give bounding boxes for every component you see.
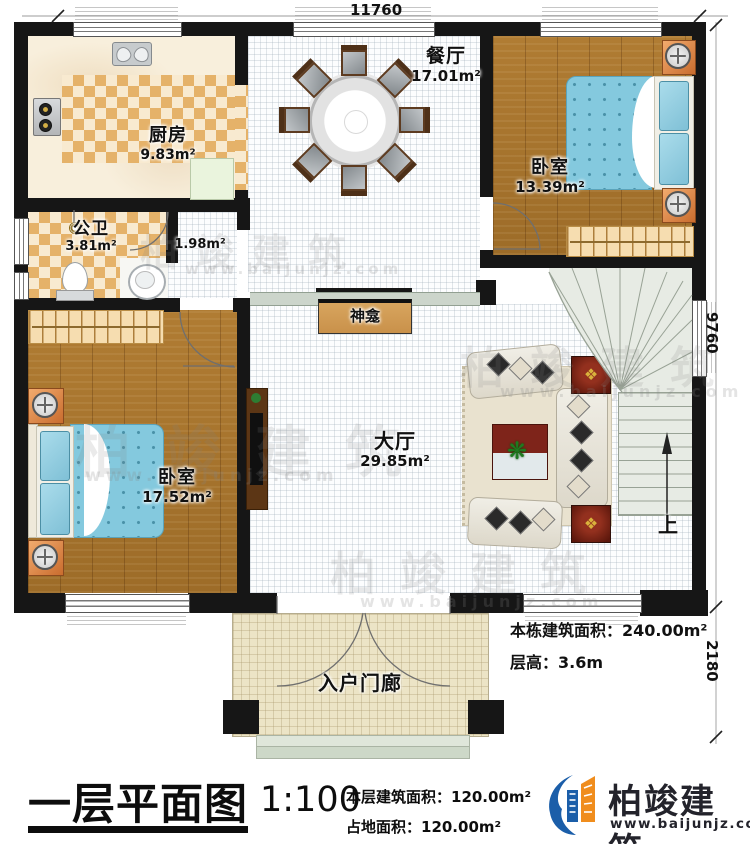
coffee-table-plant: ❋ bbox=[507, 437, 527, 465]
bedroom1-lamp-bottom bbox=[665, 191, 691, 217]
sill-top-bedroom1 bbox=[542, 7, 658, 20]
note-floor-height: 层高：3.6m bbox=[510, 654, 710, 672]
window-left-bath-1 bbox=[14, 218, 29, 265]
bedroom2-wardrobe bbox=[28, 310, 164, 344]
bedroom1-name: 卧室 bbox=[504, 158, 596, 179]
bedroom2-pillow-2 bbox=[40, 483, 70, 535]
dining-chair-w bbox=[284, 107, 310, 133]
bedroom1-pillow-1 bbox=[659, 81, 689, 131]
coffee-table: ❋ bbox=[492, 424, 548, 480]
page-title: 一层平面图 bbox=[28, 770, 248, 832]
wall-bottom-a bbox=[14, 593, 65, 613]
end-table-top: ❖ bbox=[571, 356, 611, 394]
brand-site: www.baijunjz.com bbox=[610, 816, 750, 832]
bathroom-name: 公卫 bbox=[55, 220, 127, 240]
wall-bottom-d bbox=[640, 590, 708, 616]
sill-bottom-bedroom2 bbox=[67, 613, 186, 625]
dimension-top: 11760 bbox=[350, 1, 402, 19]
hall-label: 大厅 29.85m² bbox=[348, 430, 442, 470]
sink-basin-left bbox=[114, 45, 133, 64]
dining-label: 餐厅 17.01m² bbox=[400, 46, 492, 85]
wall-bottom-c bbox=[450, 593, 523, 613]
wall-kitchen-divider-b bbox=[235, 190, 248, 212]
sill-top-kitchen bbox=[75, 7, 178, 20]
porch-label: 入户门廊 bbox=[300, 672, 420, 695]
stove-burner-2 bbox=[39, 119, 52, 132]
bedroom1-label: 卧室 13.39m² bbox=[504, 158, 596, 196]
hall-area: 29.85m² bbox=[348, 453, 442, 470]
window-bottom-hall bbox=[523, 594, 642, 613]
bathroom-sink-basin bbox=[135, 271, 155, 289]
dining-chair-e bbox=[399, 107, 425, 133]
window-left-bath-2 bbox=[14, 272, 29, 300]
title-underline bbox=[28, 826, 248, 833]
hall-name: 大厅 bbox=[348, 430, 442, 453]
dining-name: 餐厅 bbox=[400, 46, 492, 68]
dimension-right-upper: 9760 bbox=[703, 312, 721, 354]
bathroom-label: 公卫 3.81m² bbox=[55, 220, 127, 254]
window-top-kitchen bbox=[73, 22, 182, 37]
window-top-dining bbox=[293, 22, 435, 37]
end-table-bottom: ❖ bbox=[571, 505, 611, 543]
tv-screen bbox=[250, 413, 263, 485]
shrine-label: 神龛 bbox=[350, 307, 380, 325]
dining-table-center bbox=[344, 110, 368, 134]
porch-column-right bbox=[468, 700, 504, 734]
note-total-area: 本栋建筑面积：240.00m² bbox=[510, 622, 710, 640]
stairs-up-label: 上 bbox=[655, 514, 681, 537]
wall-bottom-b bbox=[188, 593, 277, 613]
kitchen-label: 厨房 9.83m² bbox=[128, 126, 208, 163]
toilet-tank bbox=[56, 290, 94, 301]
bathroom-sink bbox=[128, 264, 166, 300]
wall-left bbox=[14, 22, 28, 613]
bedroom2-name: 卧室 bbox=[131, 468, 223, 489]
shrine-cabinet: 神龛 bbox=[318, 299, 412, 334]
bedroom1-lamp-top bbox=[665, 43, 691, 69]
wall-bath-stub bbox=[166, 208, 178, 263]
dining-chair-n bbox=[341, 50, 367, 76]
kitchen-sink bbox=[112, 42, 152, 66]
bathroom-area: 3.81m² bbox=[55, 240, 127, 255]
stove-burner-1 bbox=[39, 103, 52, 116]
wall-kitchen-divider-a bbox=[235, 22, 248, 85]
title-block: 一层平面图 1:100 本层建筑面积：120.00m² 占地面积：120.00m… bbox=[0, 768, 750, 844]
bedroom2-lamp-bottom bbox=[32, 544, 58, 570]
bedroom1-wardrobe bbox=[566, 226, 694, 257]
porch-column-left bbox=[223, 700, 259, 734]
stairs-straight-flight bbox=[618, 392, 694, 516]
kitchen-cabinet bbox=[190, 158, 234, 200]
sink-basin-right bbox=[132, 45, 151, 64]
kitchen-pass-counter bbox=[235, 85, 248, 190]
corridor-floor bbox=[168, 212, 237, 298]
floor-plan: 神龛 bbox=[0, 0, 750, 844]
footprint-note: 占地面积：120.00m² bbox=[346, 816, 501, 837]
corridor-area-label: 1.98m² bbox=[168, 238, 232, 253]
bedroom2-lamp-top bbox=[32, 392, 58, 418]
bedroom1-area: 13.39m² bbox=[504, 179, 596, 196]
dining-area: 17.01m² bbox=[400, 68, 492, 85]
brand-name: 柏竣建筑 bbox=[608, 774, 750, 844]
wall-kitchen-bottom bbox=[14, 198, 248, 212]
kitchen-name: 厨房 bbox=[128, 126, 208, 147]
brand-logo-icon bbox=[543, 772, 607, 838]
bedroom1-pillow-2 bbox=[659, 133, 689, 185]
bedroom2-pillow-1 bbox=[40, 431, 70, 481]
stove bbox=[33, 98, 61, 136]
kitchen-area: 9.83m² bbox=[128, 147, 208, 163]
dining-chair-s bbox=[341, 165, 367, 191]
bedroom2-tv-cabinet bbox=[246, 388, 268, 510]
floor-area-note: 本层建筑面积：120.00m² bbox=[346, 786, 531, 807]
bedroom2-area: 17.52m² bbox=[131, 489, 223, 506]
tv-plant bbox=[251, 393, 261, 403]
bedroom2-label: 卧室 17.52m² bbox=[131, 468, 223, 506]
window-bottom-bedroom2 bbox=[65, 594, 190, 613]
window-top-bedroom1 bbox=[540, 22, 662, 37]
porch-step-2 bbox=[256, 746, 470, 759]
